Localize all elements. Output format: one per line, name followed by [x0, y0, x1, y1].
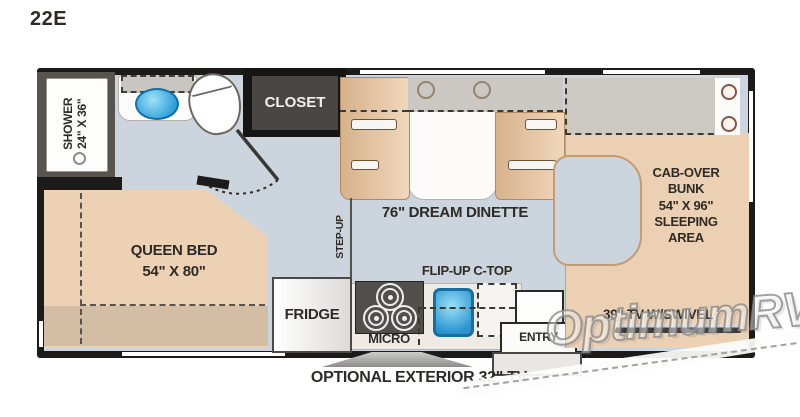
plan-code: 22E [30, 8, 90, 31]
window-strip [749, 91, 753, 202]
sink-icon [135, 88, 179, 120]
dinette-armrest [525, 119, 557, 130]
fridge: FRIDGE [272, 277, 352, 353]
cup-holder-icon [417, 81, 435, 99]
queen-bed: QUEEN BED 54" X 80" [44, 190, 268, 348]
queen-bed-label: QUEEN BED 54" X 80" [84, 240, 264, 282]
window-strip [603, 70, 700, 74]
step-up-line [350, 198, 352, 283]
counter-dash-line [418, 307, 420, 345]
kitchen-sink-icon [433, 288, 474, 337]
grommet-icon [721, 116, 737, 132]
flip-up-label: FLIP-UP C-TOP [392, 264, 542, 279]
window-strip [360, 70, 545, 74]
shower-stall: SHOWER 24" X 36" [37, 72, 115, 177]
fridge-label: FRIDGE [285, 306, 340, 323]
bed-fold-line [80, 193, 82, 344]
floorplan-page: 22E SHOWER 24" X 36" CLOSET [0, 0, 800, 417]
dinette-fold-line [340, 110, 408, 112]
bathroom-vanity [118, 75, 197, 121]
closet-label: CLOSET [265, 94, 326, 111]
dinette-bench-left [340, 77, 410, 200]
dinette-armrest [351, 119, 397, 130]
stove-burner-icon [391, 305, 417, 331]
step-up-label: STEP-UP [334, 197, 348, 277]
cup-holder-icon [473, 81, 491, 99]
window-strip [122, 352, 285, 356]
closet-interior: CLOSET [252, 76, 338, 130]
stove-burner-icon [363, 305, 389, 331]
dinette-label: 76" DREAM DINETTE [355, 204, 555, 221]
cab-panel [715, 78, 740, 135]
grommet-icon [721, 84, 737, 100]
micro-label: MICRO [349, 332, 429, 347]
bed-fold-line [80, 304, 265, 306]
shower-pan: SHOWER 24" X 36" [46, 78, 108, 172]
cab-dash-area [565, 78, 724, 135]
dinette-armrest [351, 160, 379, 170]
window-strip [39, 321, 43, 347]
bed-foot-section [44, 306, 268, 346]
dinette-armrest [508, 160, 557, 170]
closet: CLOSET [243, 68, 346, 137]
counter-dash-line [420, 307, 515, 309]
cab-over-bunk-label: CAB-OVER BUNK 54" X 96" SLEEPING AREA [626, 165, 746, 246]
shower-drain-icon [73, 152, 86, 165]
